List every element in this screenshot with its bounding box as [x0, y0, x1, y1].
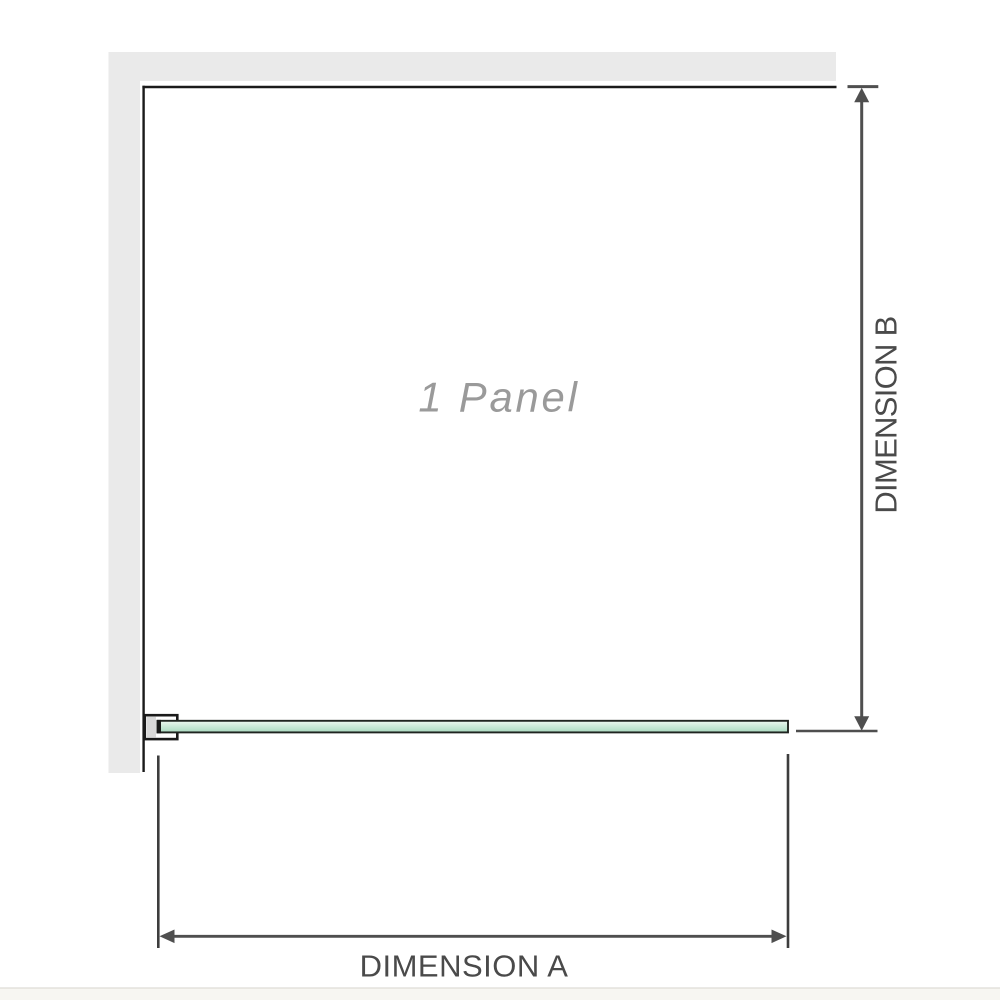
svg-text:DIMENSION A: DIMENSION A — [360, 949, 569, 984]
svg-text:DIMENSION B: DIMENSION B — [868, 316, 903, 513]
svg-text:1 Panel: 1 Panel — [418, 374, 579, 421]
